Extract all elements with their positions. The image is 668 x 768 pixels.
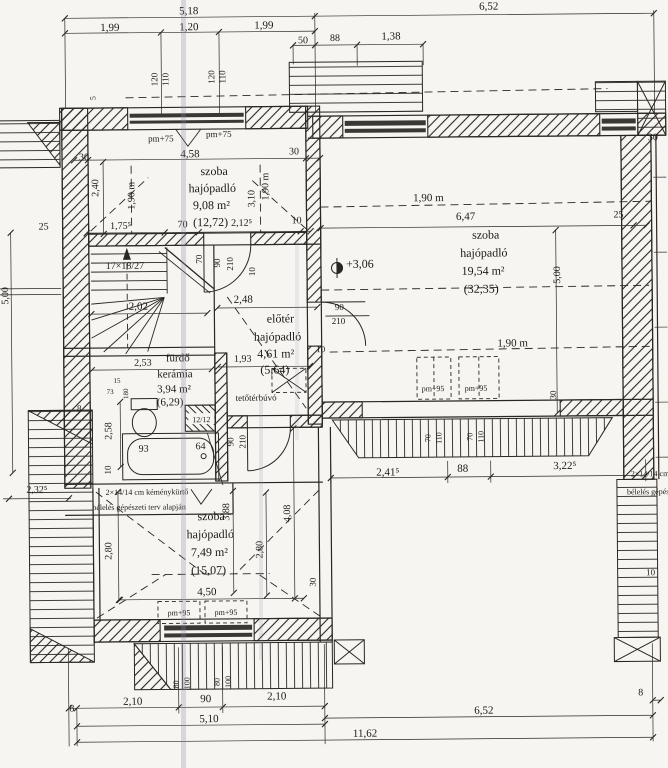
label-dim-90-b: 90 [200, 693, 212, 705]
label-dim-30a: 30 [79, 152, 89, 163]
label-room-bath-area: 3,94 m² [157, 383, 192, 395]
label-win-80b: 80 [213, 678, 222, 686]
label-room-nw-area: 9,08 m² [193, 198, 230, 212]
label-pm75-b: pm+75 [206, 129, 232, 139]
label-dim-64: 64 [195, 441, 205, 452]
label-dim-652-top: 6,52 [479, 1, 498, 13]
label-room-nw-gross: (12,72) [193, 215, 228, 229]
label-dim-8-left: 8 [77, 403, 82, 413]
label-note-chimney-2: bélelés gépészeti terv alapján [92, 502, 186, 512]
label-dim-3225: 3,22⁵ [553, 460, 576, 472]
label-door-nw-90: 90 [212, 258, 222, 268]
label-dim-310: 3,10 [246, 190, 257, 208]
label-dim-510: 5,10 [199, 713, 219, 725]
eave-right-band [617, 479, 658, 637]
label-win-110b: 110 [217, 70, 227, 84]
label-dim-93: 93 [139, 444, 149, 455]
label-roofwin-110b: 110 [476, 431, 485, 443]
label-dim-190-nw-left: 1,90 m [126, 182, 137, 210]
label-dim-10a: 10 [292, 215, 302, 226]
label-dim-8-br: 8 [638, 687, 643, 698]
label-room-s-gross: (15,07) [191, 563, 226, 577]
label-level-306: +3,06 [346, 257, 374, 271]
label-dim-1755: 1,75⁵ [110, 221, 131, 232]
label-door-e-210: 210 [332, 316, 346, 326]
label-dim-500-e: 5,00 [552, 266, 563, 284]
label-room-e-gross: (32,35) [464, 282, 499, 296]
label-room-bath-gross: (6,29) [157, 396, 184, 408]
eave-top-left [0, 120, 60, 168]
label-room-hall-floor: hajópadló [254, 329, 301, 343]
label-dim-30-ne: 30 [648, 132, 658, 143]
label-room-e-name: szoba [472, 228, 500, 242]
label-win-120b: 120 [206, 70, 216, 84]
label-dim-199a: 1,99 [100, 22, 120, 34]
label-room-hall-area: 4,61 m² [257, 346, 294, 360]
label-dim-88-e: 88 [457, 463, 469, 475]
label-room-nw-name: szoba [200, 164, 228, 178]
label-dim-15: 15 [113, 377, 121, 385]
label-dim-25-e: 25 [613, 209, 623, 220]
label-roofwin-70b: 70 [465, 433, 474, 441]
label-dim-73: 73 [107, 388, 115, 396]
label-dim-193: 1,93 [234, 354, 252, 365]
label-door-nw-210: 210 [225, 257, 235, 271]
label-dim-2325: 2,32⁵ [26, 485, 47, 496]
label-room-s-floor: hajópadló [187, 527, 234, 541]
label-dim-190-e2: 1,90 m [497, 337, 528, 349]
label-dim-2125: 2,12⁵ [231, 218, 252, 229]
label-pm95-d: pm+95 [215, 608, 238, 617]
label-door-e-90: 90 [335, 302, 345, 312]
label-dim-280-l: 2,80 [103, 542, 114, 560]
label-dim-240: 2,40 [90, 179, 101, 197]
label-dim-248: 2,48 [234, 294, 254, 306]
label-stair-formula: 17×18/27 [106, 261, 145, 272]
label-dim-190-nw-right: 1,90 m [260, 172, 271, 200]
label-dim-2415: 2,41⁵ [376, 466, 399, 478]
label-door-s-210: 210 [237, 435, 247, 449]
label-dim-1162: 11,62 [353, 728, 377, 740]
label-door-nw-70: 70 [194, 254, 204, 264]
label-roofwin-110a: 110 [434, 432, 443, 444]
roof-band-south [134, 642, 332, 690]
label-note-chimney-1: 2×14/14 cm kéménykürtő [106, 487, 189, 497]
label-dim-180: 180 [122, 388, 130, 399]
label-pm95-a: pm+95 [422, 384, 445, 393]
label-dim-388: 3,88 [221, 503, 232, 521]
label-dim-450: 4,50 [197, 586, 217, 598]
label-dim-30-e: 30 [548, 390, 558, 400]
label-roofwin-70a: 70 [423, 434, 432, 442]
label-dim-202: 2,02 [129, 301, 148, 313]
label-dim-8-bl: 8 [69, 703, 74, 714]
label-dim-30b: 30 [289, 146, 299, 157]
label-dim-253: 2,53 [134, 358, 152, 369]
label-dim-30-s: 30 [308, 577, 318, 587]
label-door-s-90: 90 [225, 437, 235, 447]
label-dim-88-top: 88 [330, 33, 340, 44]
label-note-right-2: bélelés gépészeti terv alapján [627, 487, 668, 497]
label-win-100b: 100 [224, 676, 233, 688]
label-win-80a: 80 [172, 680, 181, 688]
label-chimney-size: 12/12 [192, 415, 210, 424]
floor-plan-svg: 5,181,991,201,996,5250881,38120110120110… [0, 0, 668, 768]
label-dim-10-se: 10 [646, 567, 656, 577]
label-dim-10c: 10 [103, 465, 113, 475]
label-room-e-floor: hajópadló [460, 245, 507, 259]
label-room-hall-gross: (5,64) [260, 362, 289, 376]
label-dim-199b: 1,99 [254, 20, 274, 32]
label-room-hall-name: előtér [267, 311, 294, 325]
label-pm95-c: pm+95 [168, 608, 191, 617]
label-dim-210a: 2,10 [123, 696, 143, 708]
label-dim-652-b: 6,52 [474, 705, 493, 717]
label-note-right-1: 2×14/14 cm kéménykürtő [631, 469, 668, 479]
label-dim-408: 4,08 [282, 505, 293, 523]
label-dim-25-left: 25 [39, 221, 49, 232]
label-mark-5: 5 [88, 96, 97, 100]
label-dim-258: 2,58 [103, 422, 114, 440]
label-dim-10b: 10 [316, 344, 326, 354]
scanned-floor-plan: 5,181,991,201,996,5250881,38120110120110… [0, 0, 668, 768]
label-win-110a: 110 [160, 72, 170, 86]
label-attic-hatch-label: tetőtérbúvó [236, 392, 278, 402]
label-room-e-area: 19,54 m² [461, 264, 504, 278]
label-room-bath-floor: kerámia [157, 368, 193, 380]
label-room-bath-name: fürdő [166, 352, 190, 364]
label-room-nw-floor: hajópadló [189, 181, 236, 195]
label-pm75-a: pm+75 [148, 133, 174, 143]
label-dim-50: 50 [298, 35, 308, 46]
label-win-120a: 120 [149, 72, 159, 86]
label-dim-500-w: 5,00 [0, 287, 11, 305]
label-door-nw-10: 10 [247, 267, 257, 277]
label-room-s-area: 7,49 m² [191, 545, 228, 559]
label-pm95-b: pm+95 [465, 384, 488, 393]
label-dim-647: 6,47 [456, 211, 476, 223]
label-dim-138: 1,38 [381, 30, 401, 42]
label-dim-190-e1: 1,90 m [413, 192, 444, 204]
label-dim-210b: 2,10 [267, 690, 287, 702]
